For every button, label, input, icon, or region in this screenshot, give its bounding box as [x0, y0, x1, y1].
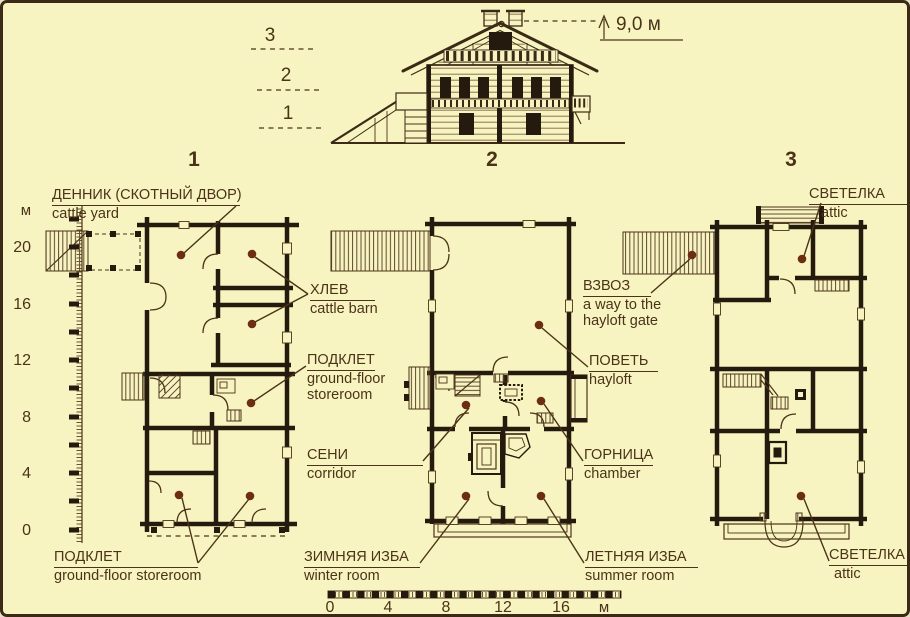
callout-khlev-ru: ХЛЕВ [310, 283, 375, 301]
architectural-diagram: 1 2 3 3 2 1 9,0 м ДЕННИК (СКОТНЫЙ ДВОР) … [0, 0, 910, 617]
plan-2-number: 2 [483, 148, 501, 172]
callout-khlev: ХЛЕВ cattle barn [310, 283, 378, 317]
russian-stove [468, 433, 501, 474]
chimney-block [769, 442, 786, 463]
callout-letnyaya-izba: ЛЕТНЯЯ ИЗБА summer room [585, 550, 698, 584]
vscale-12: 12 [3, 352, 31, 370]
callout-podklet-mid-ru: ПОДКЛЕТ [307, 353, 375, 371]
callout-svetelka-bottom: СВЕТЕЛКА attic [829, 548, 910, 582]
horizontal-scale-bar [328, 591, 621, 598]
vscale-0: 0 [3, 522, 31, 540]
callout-svetelka-top-en: attic [821, 206, 909, 221]
callout-zimnyaya-izba: ЗИМНЯЯ ИЗБА winter room [304, 550, 420, 584]
plan-3-drawing [623, 206, 867, 547]
hscale-unit: м [593, 599, 615, 616]
chimney-left [484, 11, 497, 26]
callout-gornitsa: ГОРНИЦА chamber [584, 448, 653, 482]
callout-podklet-bottom-ru: ПОДКЛЕТ [54, 550, 198, 568]
callout-letnyaya-izba-en: summer room [585, 569, 698, 584]
plan3-windows [714, 224, 865, 474]
plan3-ramp-hatch [623, 232, 715, 274]
callout-dennik-ru: ДЕННИК (СКОТНЫЙ ДВОР) [52, 188, 240, 206]
vscale-16: 16 [3, 296, 31, 314]
stove-corridor [500, 385, 522, 400]
callout-zimnyaya-izba-ru: ЗИМНЯЯ ИЗБА [304, 550, 420, 568]
side-gallery [571, 375, 587, 422]
level-2-label: 2 [277, 65, 295, 87]
callout-dennik: ДЕННИК (СКОТНЫЙ ДВОР) cattle yard [52, 188, 240, 222]
porch-outline [434, 524, 571, 537]
callout-povet-ru: ПОВЕТЬ [589, 354, 658, 372]
plan2-ramp-hatch [331, 231, 430, 271]
callout-svetelka-top: СВЕТЕЛКА attic [809, 187, 909, 221]
callout-podklet-mid: ПОДКЛЕТ ground-floor storeroom [307, 353, 385, 404]
attic-window [489, 32, 512, 50]
callout-podklet-bottom-en: ground-floor storeroom [54, 569, 202, 584]
callout-vzvoz-ru: ВЗВОЗ [583, 279, 651, 297]
corral-posts [86, 231, 141, 271]
callout-dennik-en: cattle yard [52, 207, 240, 222]
vscale-20: 20 [3, 239, 31, 257]
vscale-8: 8 [3, 409, 31, 427]
vscale-unit: м [3, 202, 31, 219]
callout-seni-ru: СЕНИ [307, 448, 423, 466]
callout-podklet-bottom: ПОДКЛЕТ ground-floor storeroom [54, 550, 202, 584]
height-label: 9,0 м [616, 14, 661, 36]
hscale-0: 0 [319, 599, 341, 617]
callout-letnyaya-izba-ru: ЛЕТНЯЯ ИЗБА [585, 550, 698, 568]
plan-1-drawing [46, 217, 299, 536]
callout-zimnyaya-izba-en: winter room [304, 569, 420, 584]
diagram-artwork [3, 3, 910, 617]
hscale-8: 8 [435, 599, 457, 617]
plan-1-number: 1 [185, 148, 203, 172]
callout-vzvoz-en2: hayloft gate [583, 314, 661, 329]
plan-3-number: 3 [782, 148, 800, 172]
callout-svetelka-bottom-en: attic [834, 567, 910, 582]
hscale-4: 4 [377, 599, 399, 617]
elevation-ramp [331, 93, 427, 143]
callout-khlev-en: cattle barn [310, 302, 378, 317]
corner-stove [505, 434, 530, 458]
level-3-label: 3 [261, 25, 279, 47]
elevation-balcony [572, 96, 590, 124]
callout-vzvoz-en1: a way to the [583, 298, 661, 313]
callout-podklet-mid-en2: storeroom [307, 388, 385, 403]
callout-svetelka-bottom-ru: СВЕТЕЛКА [829, 548, 910, 566]
hscale-12: 12 [492, 599, 514, 617]
callout-gornitsa-ru: ГОРНИЦА [584, 448, 653, 466]
chimney-right [509, 11, 522, 26]
level-1-label: 1 [279, 103, 297, 125]
hscale-16: 16 [550, 599, 572, 617]
callout-seni-en: corridor [307, 467, 423, 482]
callout-svetelka-top-ru: СВЕТЕЛКА [809, 187, 909, 205]
vscale-4: 4 [3, 465, 31, 483]
callout-seni: СЕНИ corridor [307, 448, 423, 482]
callout-povet-en: hayloft [589, 373, 658, 388]
elevation-drawing [331, 11, 625, 143]
callout-povet: ПОВЕТЬ hayloft [589, 354, 658, 388]
callout-gornitsa-en: chamber [584, 467, 653, 482]
callout-vzvoz: ВЗВОЗ a way to the hayloft gate [583, 279, 661, 330]
callout-podklet-mid-en1: ground-floor [307, 372, 385, 387]
